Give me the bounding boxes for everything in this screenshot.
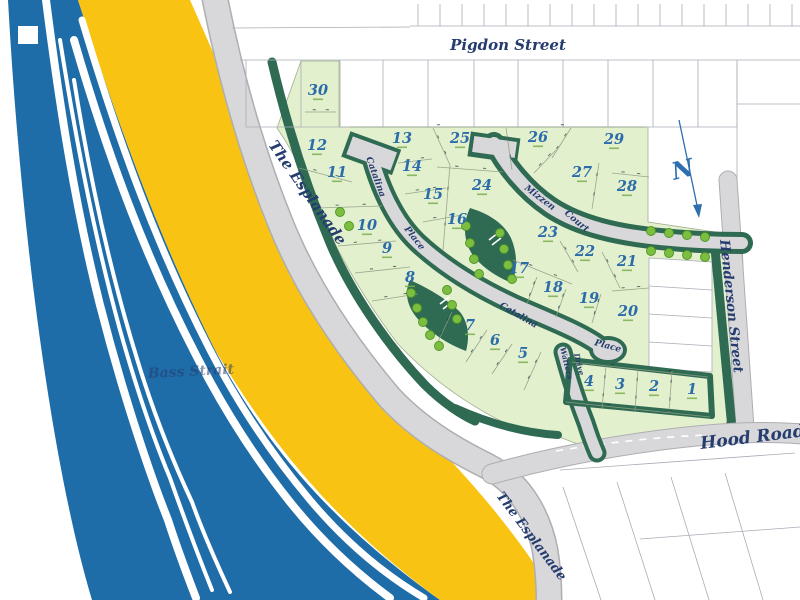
dimension-text-mark	[326, 109, 329, 110]
lot-area-text	[615, 393, 625, 395]
lot-area-text	[477, 194, 487, 196]
tree-icon	[407, 289, 416, 298]
lot-area-text	[428, 203, 438, 205]
dimension-text-mark	[336, 205, 339, 206]
tree-icon	[475, 270, 484, 279]
tree-icon	[413, 304, 422, 313]
tree-icon	[647, 227, 656, 236]
tree-icon	[426, 331, 435, 340]
lot-area-text	[548, 296, 558, 298]
lot-area-text	[312, 154, 322, 156]
lot-number-11: 11	[327, 164, 347, 181]
lot-number-8: 8	[405, 269, 415, 286]
lot-area-text	[580, 260, 590, 262]
neighbour-boundary	[563, 487, 601, 600]
lot-number-1: 1	[687, 381, 697, 398]
lot-number-27: 27	[571, 164, 592, 181]
tree-icon	[665, 229, 674, 238]
tree-icon	[435, 342, 444, 351]
lot-number-22: 22	[574, 243, 595, 260]
lot-area-text	[490, 349, 500, 351]
estate-map: Bass Strait	[0, 0, 800, 600]
lot-number-5: 5	[518, 345, 528, 362]
lot-number-16: 16	[447, 211, 467, 228]
lot-number-9: 9	[382, 240, 392, 257]
lot-area-text	[382, 257, 392, 259]
lot-area-text	[623, 320, 633, 322]
lot-area-text	[313, 99, 323, 101]
lot-area-text	[533, 146, 543, 148]
tree-icon	[419, 318, 428, 327]
tree-icon	[683, 231, 692, 240]
lot-number-23: 23	[537, 224, 558, 241]
water-notch	[18, 26, 38, 44]
lot-area-text	[362, 234, 372, 236]
lot-area-text	[622, 195, 632, 197]
tree-icon	[345, 222, 354, 231]
lot-number-24: 24	[471, 177, 492, 194]
lot-number-6: 6	[490, 332, 500, 349]
lot-area-text	[452, 228, 462, 230]
lot-number-12: 12	[307, 137, 327, 154]
lot-number-30: 30	[308, 82, 328, 99]
lot-number-28: 28	[616, 178, 637, 195]
lot-number-20: 20	[617, 303, 638, 320]
lot-number-15: 15	[423, 186, 443, 203]
lot-area-text	[332, 181, 342, 183]
tree-icon	[470, 255, 479, 264]
lot-area-text	[577, 181, 587, 183]
lot-number-7: 7	[465, 317, 475, 334]
tree-icon	[448, 301, 457, 310]
lot-number-18: 18	[543, 279, 563, 296]
lot-area-text	[609, 148, 619, 150]
lot-number-14: 14	[402, 158, 422, 175]
lot-number-2: 2	[648, 378, 659, 395]
tree-icon	[500, 245, 509, 254]
tree-icon	[665, 249, 674, 258]
lot-area-text	[543, 241, 553, 243]
lot-number-19: 19	[579, 290, 599, 307]
lot-number-29: 29	[603, 131, 624, 148]
lot-area-text	[405, 286, 415, 288]
tree-icon	[701, 253, 710, 262]
tree-icon	[496, 229, 505, 238]
lot-area-text	[622, 270, 632, 272]
neighbour-boundary	[617, 482, 655, 600]
north-arrow: N	[667, 120, 702, 218]
neighbour-boundary	[671, 477, 709, 600]
lot-number-10: 10	[357, 217, 377, 234]
lot-area-text	[649, 395, 659, 397]
tree-icon	[647, 247, 656, 256]
tree-icon	[683, 251, 692, 260]
lot-number-17: 17	[509, 260, 529, 277]
lot-area-text	[687, 398, 697, 400]
lot-area-text	[518, 362, 528, 364]
north-label: N	[667, 152, 697, 186]
lot-area-text	[465, 334, 475, 336]
lot-number-25: 25	[449, 130, 470, 147]
lot-area-text	[407, 175, 417, 177]
dimension-text-mark	[561, 124, 564, 125]
tree-icon	[443, 286, 452, 295]
dimension-text-mark	[362, 204, 365, 205]
tree-icon	[466, 239, 475, 248]
tree-icon	[701, 233, 710, 242]
lot-area-text	[584, 307, 594, 309]
lot-area-text	[584, 390, 594, 392]
neighbour-pocket-east	[649, 258, 712, 372]
lot-area-text	[514, 277, 524, 279]
lot-number-3: 3	[615, 376, 625, 393]
lot-number-13: 13	[392, 130, 412, 147]
tree-icon	[336, 208, 345, 217]
pigdon-street-label: Pigdon Street	[449, 36, 566, 54]
lot-number-21: 21	[616, 253, 637, 270]
neighbour-boundary	[640, 527, 800, 539]
neighbour-boundary	[725, 473, 763, 600]
lot-area-text	[455, 147, 465, 149]
lot-number-4: 4	[584, 373, 594, 390]
dimension-text-mark	[437, 124, 440, 125]
tree-icon	[453, 315, 462, 324]
lot-number-26: 26	[527, 129, 548, 146]
lot-area-text	[397, 147, 407, 149]
dimension-text-mark	[313, 109, 316, 110]
